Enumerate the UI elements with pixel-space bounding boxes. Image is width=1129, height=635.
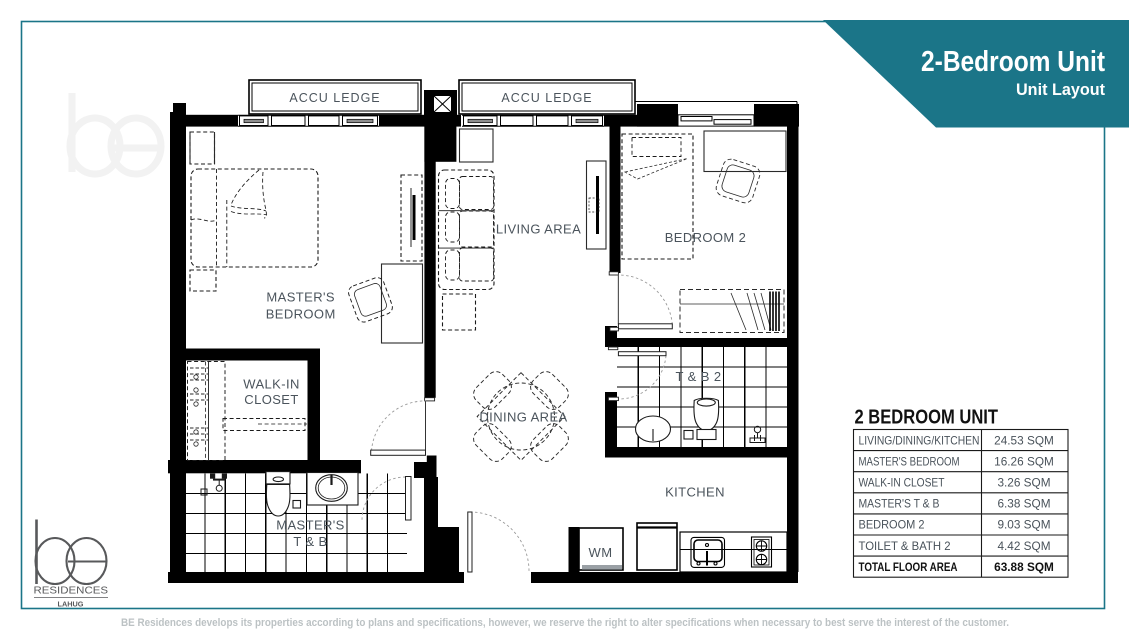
svg-text:KITCHEN: KITCHEN <box>665 485 725 500</box>
svg-text:WM: WM <box>588 545 612 560</box>
svg-text:3.26 SQM: 3.26 SQM <box>997 476 1050 490</box>
svg-text:MASTER'S BEDROOM: MASTER'S BEDROOM <box>859 454 960 468</box>
svg-text:2 BEDROOM UNIT: 2 BEDROOM UNIT <box>855 406 999 429</box>
svg-text:4.42 SQM: 4.42 SQM <box>997 539 1050 553</box>
svg-text:RESIDENCES: RESIDENCES <box>34 586 109 597</box>
svg-text:6.38 SQM: 6.38 SQM <box>997 497 1050 511</box>
svg-text:TOILET & BATH 2: TOILET & BATH 2 <box>859 539 951 553</box>
svg-text:WALK-IN CLOSET: WALK-IN CLOSET <box>859 476 945 490</box>
svg-text:ACCU LEDGE: ACCU LEDGE <box>289 91 380 105</box>
svg-text:24.53 SQM: 24.53 SQM <box>994 433 1054 447</box>
svg-text:BEDROOM 2: BEDROOM 2 <box>859 518 925 532</box>
svg-text:BEDROOM 2: BEDROOM 2 <box>665 230 747 245</box>
svg-text:DINING AREA: DINING AREA <box>479 410 567 425</box>
svg-text:T & B: T & B <box>293 534 327 549</box>
svg-text:ACCU LEDGE: ACCU LEDGE <box>501 91 592 105</box>
svg-text:T & B 2: T & B 2 <box>676 369 722 384</box>
svg-text:LIVING/DINING/KITCHEN: LIVING/DINING/KITCHEN <box>859 433 980 447</box>
svg-text:MASTER'S: MASTER'S <box>266 289 335 304</box>
svg-text:LIVING AREA: LIVING AREA <box>496 222 581 237</box>
svg-text:Unit Layout: Unit Layout <box>1016 80 1105 99</box>
svg-text:TOTAL FLOOR AREA: TOTAL FLOOR AREA <box>859 560 958 574</box>
svg-text:CLOSET: CLOSET <box>244 392 298 407</box>
svg-text:BEDROOM: BEDROOM <box>266 307 336 322</box>
svg-text:MASTER'S T & B: MASTER'S T & B <box>859 497 940 511</box>
svg-text:16.26 SQM: 16.26 SQM <box>994 454 1054 468</box>
svg-text:WALK-IN: WALK-IN <box>243 376 300 391</box>
svg-text:2-Bedroom Unit: 2-Bedroom Unit <box>921 46 1105 78</box>
svg-text:9.03 SQM: 9.03 SQM <box>997 518 1050 532</box>
svg-text:BE Residences develops its pro: BE Residences develops its properties ac… <box>121 617 1009 629</box>
svg-text:LAHUG: LAHUG <box>58 602 85 609</box>
svg-text:63.88 SQM: 63.88 SQM <box>994 560 1054 574</box>
svg-text:MASTER'S: MASTER'S <box>276 518 345 533</box>
